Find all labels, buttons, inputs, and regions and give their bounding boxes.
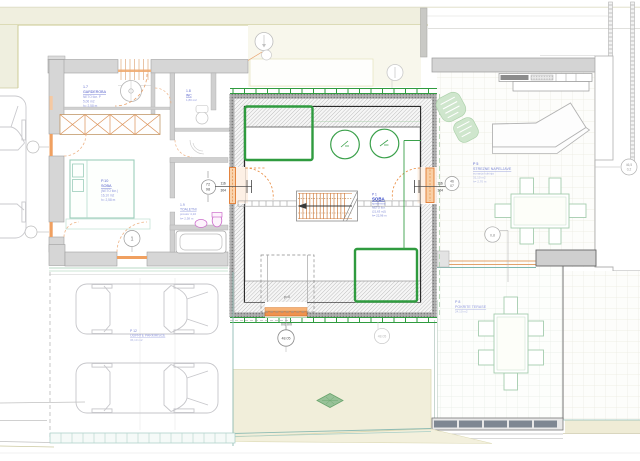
svg-text:48.05: 48.05 (378, 335, 387, 339)
svg-text:1.7: 1.7 (83, 85, 88, 89)
svg-text:p=0: p=0 (284, 295, 290, 299)
svg-text:46,5: 46,5 (626, 163, 632, 167)
svg-text:(NETO tlor.): (NETO tlor.) (101, 189, 118, 193)
svg-text:24,10 m2: 24,10 m2 (455, 310, 468, 314)
svg-text:1: 1 (130, 237, 133, 243)
svg-text:P 5: P 5 (473, 162, 478, 166)
svg-text:P 8: P 8 (455, 300, 460, 304)
svg-text:48.05: 48.05 (282, 337, 291, 341)
svg-text:1.9: 1.9 (180, 203, 185, 207)
svg-text:h= 2,58 m: h= 2,58 m (180, 217, 194, 221)
svg-text:5,06 m2: 5,06 m2 (83, 100, 95, 104)
svg-text:1.8: 1.8 (186, 89, 191, 93)
svg-text:0/0 0/0: 0/0 0/0 (281, 323, 292, 327)
svg-text:0,8: 0,8 (490, 234, 495, 238)
svg-text:116: 116 (438, 182, 443, 186)
svg-text:116: 116 (221, 182, 226, 186)
svg-text:P.10: P.10 (101, 179, 108, 183)
svg-text:TOALETNI: TOALETNI (180, 208, 197, 212)
svg-text:ODPRTE PARKIRISCE: ODPRTE PARKIRISCE (130, 334, 166, 338)
svg-text:16,10 m2: 16,10 m2 (101, 194, 115, 198)
svg-text:NETO tlor. P: NETO tlor. P (83, 95, 101, 99)
svg-text:WC: WC (186, 94, 192, 98)
svg-text:prostor 4,10: prostor 4,10 (180, 212, 196, 216)
svg-text:98: 98 (206, 187, 211, 192)
svg-text:h= 22,96 m: h= 22,96 m (372, 214, 387, 218)
svg-text:STREZNE NAPELJAVE: STREZNE NAPELJAVE (473, 167, 512, 171)
svg-text:h= 2,58 m: h= 2,58 m (101, 198, 116, 202)
svg-text:h= 2,58 m: h= 2,58 m (83, 104, 98, 108)
svg-text:46: 46 (450, 180, 454, 184)
svg-text:POKRITE TERASE: POKRITE TERASE (455, 305, 487, 309)
svg-text:304: 304 (221, 189, 227, 193)
svg-text:h= 2,70 m: h= 2,70 m (473, 180, 487, 184)
svg-text:07: 07 (450, 184, 454, 188)
svg-text:304: 304 (438, 189, 444, 193)
svg-text:36,10 m2: 36,10 m2 (130, 338, 143, 342)
svg-text:0,2: 0,2 (627, 168, 632, 172)
svg-text:GARDEROBA: GARDEROBA (83, 90, 107, 94)
svg-text:SOBA: SOBA (101, 184, 112, 188)
svg-text:P 12: P 12 (130, 329, 137, 333)
svg-text:1,80 m2: 1,80 m2 (186, 98, 197, 102)
